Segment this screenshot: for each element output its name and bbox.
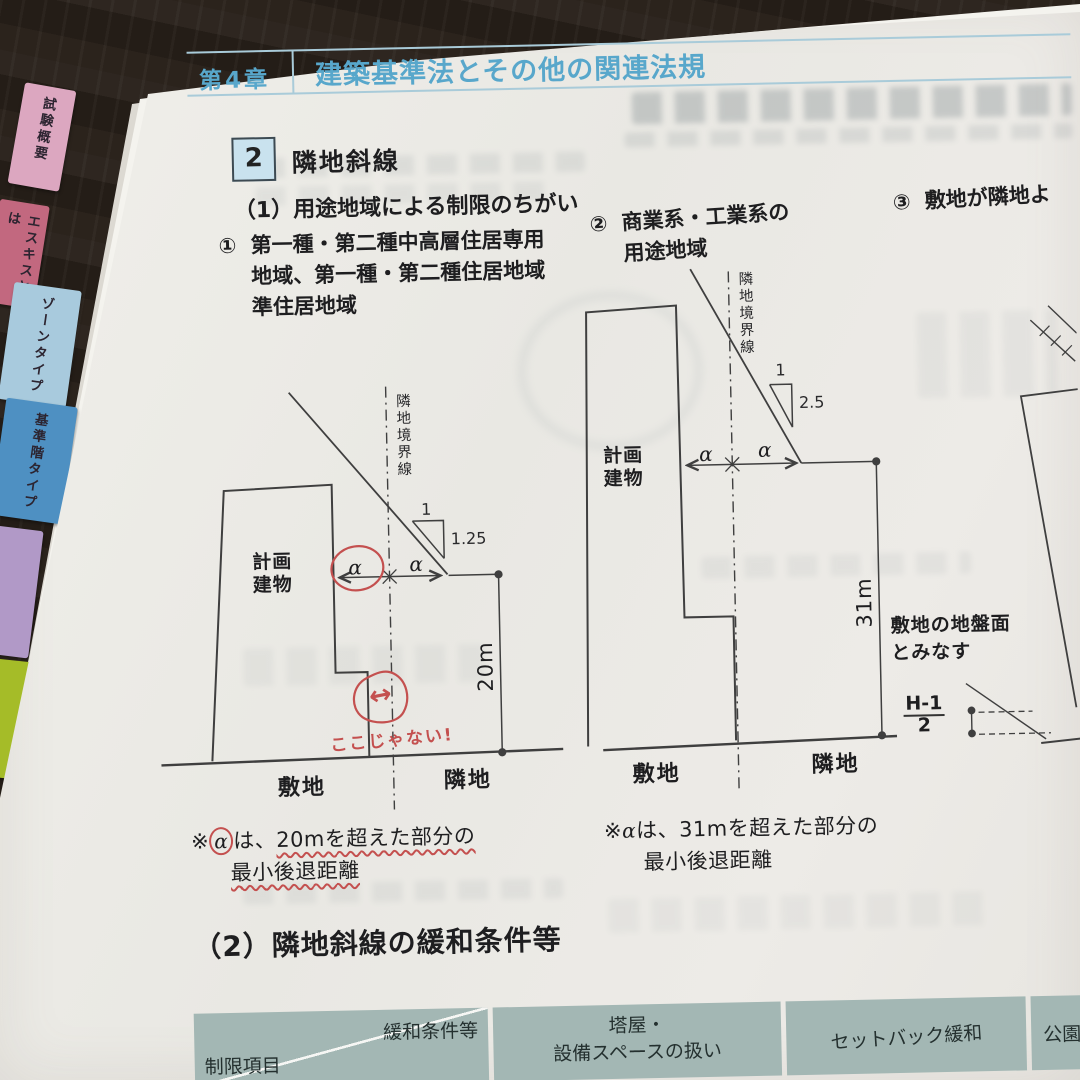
d1-alpha-left: α [348,555,362,579]
d3-fraction-denominator: 2 [917,714,931,736]
d2-building-label: 計画 建物 [603,444,644,491]
photo-canvas: 試験概要 エスキスとは ゾーンタイプ 基準階タイプ 第4章 建築基準法とその他の… [0,0,1080,1080]
d2-site-label: 敷地 [632,756,681,789]
page-content: 第4章 建築基準法とその他の関連法規 2 隣地斜線 （1）用途地域による制限のち… [0,0,1080,1080]
d1-height-label: 20m [473,631,498,691]
d2-boundary-line-label: 隣地境界線 [734,271,757,356]
d2-note-line1: ※αは、31mを超えた部分の [604,809,879,845]
diagram-3-lines [958,305,1080,744]
d2-note-line2: 最小後退距離 [643,844,773,877]
d1-note-alpha: α [209,827,234,855]
d1-building-label: 計画 建物 [252,551,293,598]
table-header-matrix-cell: 緩和条件等 制限項目 [194,1008,489,1080]
d1-site-label: 敷地 [278,769,327,802]
d2-alpha-right: α [758,438,772,462]
d2-height-label: 31m [851,567,876,627]
d1-alpha-right: α [409,552,423,576]
table-header-relaxation: 緩和条件等 [383,1016,479,1045]
subsection-2-title: （2）隣地斜線の緩和条件等 [193,918,562,966]
d3-height-fraction: H-1 2 [903,694,945,737]
d1-slope-run: 1 [421,500,432,519]
d1-boundary-line-label: 隣地境界線 [392,393,415,478]
table-header-restriction-item: 制限項目 [204,1051,281,1080]
d2-slope-rise: 2.5 [799,392,825,412]
d2-note-alpha: α [622,818,637,842]
d1-note-line2: 最小後退距離 [230,854,360,887]
d1-note-line1: ※αは、20mを超えた部分の [191,820,476,856]
table-header-setback: セットバック緩和 [786,996,1027,1075]
d1-neighbor-label: 隣地 [443,761,492,794]
d2-neighbor-label: 隣地 [811,746,860,779]
d2-alpha-left: α [699,442,713,466]
table-header-penthouse: 塔屋・ 設備スペースの扱い [493,1001,782,1080]
d2-slope-run: 1 [775,360,786,379]
table-header-park: 公園等 [1030,995,1080,1070]
d3-ground-note: 敷地の地盤面 とみなす [890,611,1011,668]
d1-slope-rise: 1.25 [451,529,487,549]
